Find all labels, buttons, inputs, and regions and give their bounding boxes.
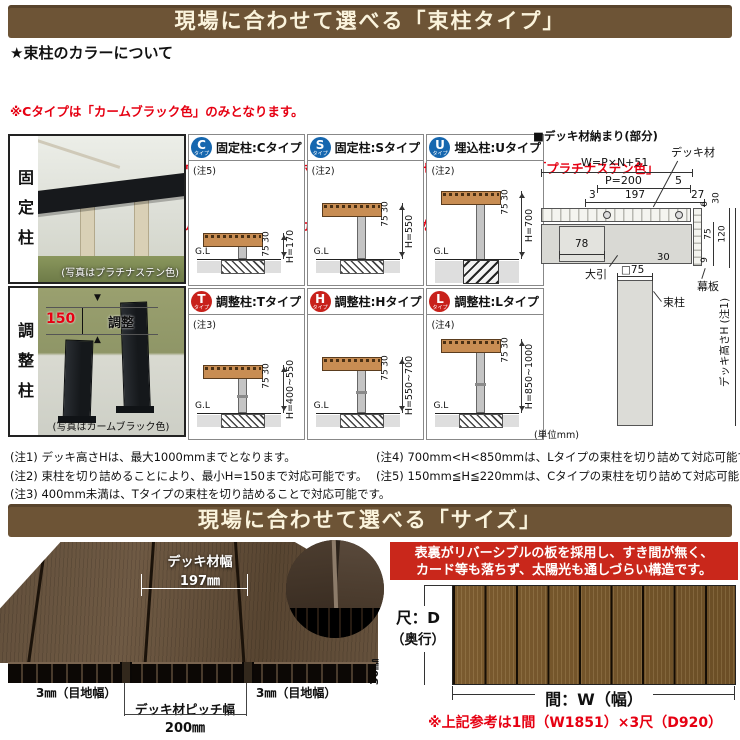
badge-sub: タイプ [194,306,209,311]
footing-hatch [459,414,503,428]
dim-line [559,254,605,255]
type-diagram: (注4) G.L 30 75 H=850~1000 [427,315,543,439]
dim-line [46,334,158,335]
height-dim-line [283,365,284,413]
dim-text: H=550~700 [404,355,415,414]
post-art [63,340,94,423]
type-badge-c: C タイプ [191,137,212,158]
cell-note: (注4) [431,317,454,331]
type-badge-s: S タイプ [310,137,331,158]
dim-text: 30 [262,363,272,374]
note-line: (注2) 束柱を切り詰めることにより、最小H=150まで対応可能です。 [10,467,390,486]
type-diagram: (注2) G.L 30 75 H=550 [308,161,424,285]
dim-text: 75 [262,245,272,256]
dim-text: 30 [500,189,510,200]
post-art [238,246,247,259]
pitch-value: 200㎜ [120,717,250,736]
board-width-dim: 197 [625,189,645,201]
type-cell-header: H タイプ 調整柱:Hタイプ [308,289,424,315]
badge-letter: L [436,293,444,305]
notes-right: (注4) 700mm<H<850mmは、Lタイプの束柱を切り詰めて対応可能です。… [376,448,740,485]
type-badge-u: U タイプ [429,137,450,158]
dim-text: 75 [381,215,391,226]
catalog-page: 現場に合わせて選べる「束柱タイプ」 ★束柱のカラーについて ※Cタイプは「カーム… [0,0,740,740]
feature-line: 表裏がリバーシブルの板を採用し、すき間が無く、 [390,545,738,562]
type-cell-header: L タイプ 調整柱:Lタイプ [427,289,543,315]
height-dim-line [402,203,403,259]
badge-sub: タイプ [194,152,209,157]
dim-text: 120 [718,225,728,242]
height-dim-line [283,233,284,259]
badge-sub: タイプ [313,152,328,157]
pitch-label: デッキ材ピッチ幅 [120,699,250,718]
footing-hatch [340,414,384,428]
dim-line [713,222,714,266]
deck-board-section-art [541,208,691,222]
gap3-dim: 3 [589,189,596,201]
deck-detail-diagram: ■デッキ材納まり(部分) デッキ材 W=P×N+51 P=200 5 3 197… [533,128,738,430]
dim-line [735,208,736,426]
photo-caption: (写真はプラチナステン色) [61,264,179,279]
dim-line [541,172,693,173]
note-line: (注3) 400mm未満は、Tタイプの束柱を切り詰めることで対応可能です。 [10,485,390,504]
width-label-wrap: 間：W（幅） [452,686,736,710]
type-cell-header: U タイプ 埋込柱:Uタイプ [427,135,543,161]
feature-line: カード等も落ちず、太陽光も通しづらい構造です。 [390,562,738,579]
type-cell-l: L タイプ 調整柱:Lタイプ (注4) G.L 30 75 H=850~1000 [426,288,544,440]
banner-post-type: 現場に合わせて選べる「束柱タイプ」 [8,5,732,38]
footing-hatch [221,414,265,428]
joint-connector-art [120,662,132,683]
cross-section-art [286,608,384,638]
dim-text: H=170 [286,229,297,262]
type-cell-c: C タイプ 固定柱:Cタイプ (注5) G.L 30 75 H=170 [188,134,305,286]
deck-art [441,191,501,205]
joint-width-label-right: 3㎜（目地幅） [256,684,336,701]
dim-text: 30 [500,337,510,348]
type-title: 固定柱:Cタイプ [216,139,302,156]
embedded-footing-hatch [463,260,499,284]
detail-title: ■デッキ材納まり(部分) [533,128,658,144]
ground-level-label: G.L [433,401,448,411]
badge-letter: C [197,139,206,151]
arrow-up-icon: ▲ [94,336,101,345]
height-dim-line [521,191,522,259]
width-formula: W=P×N+51 [581,156,648,169]
badge-letter: H [315,293,325,305]
dim-line [142,588,248,589]
adjust-joint-art [237,395,248,398]
dim-tick [141,574,142,596]
dim-text: 30 [712,192,722,203]
footing-hatch [221,260,265,274]
size-reference-note: ※上記参考は1間（W1851）×3尺（D920） [428,712,722,732]
bottom30-dim: 30 [657,252,670,263]
adjustable-post-label: 調整柱 [10,288,38,435]
cell-note: (注5) [193,163,216,177]
adjustable-post-photo-panel: 調整柱 ▼ ▲ 150 調整 (写真はカームブラック色) [8,286,186,437]
note-line: (注5) 150mm≦H≦220mmは、Cタイプの束柱を切り詰めて対応可能です。 [376,467,740,486]
fixed-post-photo: (写真はプラチナステン色) [38,136,184,282]
dim-text: 75 [500,203,510,214]
post-art [357,215,366,259]
dim-text: 6 [700,201,710,207]
post-type-grid: C タイプ 固定柱:Cタイプ (注5) G.L 30 75 H=170 [188,134,529,437]
depth-main: 尺：D [384,606,452,628]
type-title: 調整柱:Lタイプ [454,293,538,310]
adjust-joint-art [475,383,486,386]
type-diagram: (注2) G.L 30 75 H=700 [427,161,543,285]
deck-edge-art [38,172,184,214]
dim-line [46,307,158,308]
adjust-joint-art [356,391,367,394]
color-note-line: ※Cタイプは「カームブラック色」のみとなります。 [10,102,659,121]
type-cell-s: S タイプ 固定柱:Sタイプ (注2) G.L 30 75 H=550 [307,134,425,286]
height-dim-line [521,339,522,413]
feature-box: 表裏がリバーシブルの板を採用し、すき間が無く、 カード等も落ちず、太陽光も通しづ… [390,542,738,580]
deck-cross-section-art [8,662,376,683]
type-title: 埋込柱:Uタイプ [454,139,541,156]
ground-level-label: G.L [195,247,210,257]
dim-text: 75 [381,369,391,380]
joint-connector-art [242,662,254,683]
height-dim-line [402,357,403,413]
screw-icon [675,211,683,219]
deck-art [322,357,382,371]
adjustable-post-photo: ▼ ▲ 150 調整 (写真はカームブラック色) [38,288,184,435]
note-line: (注1) デッキ高さHは、最大1000mmまでとなります。 [10,448,390,467]
cell-note: (注2) [431,163,454,177]
color-section-heading: ★束柱のカラーについて [10,42,173,63]
deck-material-label: デッキ材 [671,144,715,160]
deck-groove-art [27,536,48,662]
width-label: 間：W（幅） [535,686,653,710]
adjust-range-value: 150 [46,311,75,327]
ground-level-label: G.L [195,401,210,411]
dim-text: 75 [500,351,510,362]
adjust-text: 調整 [108,312,134,331]
badge-sub: タイプ [432,152,447,157]
depth-label: 尺：D （奥行） [384,606,452,648]
post-section-art [617,280,653,426]
post-label: 束柱 [663,294,685,310]
note-line: (注4) 700mm<H<850mmは、Lタイプの束柱を切り詰めて対応可能です。 [376,448,740,467]
type-cell-t: T タイプ 調整柱:Tタイプ (注3) G.L 30 75 H=400~550 [188,288,305,440]
unit-label: (単位mm) [534,427,579,441]
type-diagram: (注3) G.L 30 75 H=400~550 [189,315,304,439]
footing-hatch [340,260,384,274]
deck-width-label: デッキ材幅 [145,551,255,570]
type-title: 調整柱:Tタイプ [216,293,301,310]
joist-label: 大引 [585,266,607,282]
ground-level-label: G.L [433,247,448,257]
type-title: 調整柱:Hタイプ [335,293,422,310]
photo-caption: (写真はカームブラック色) [38,418,184,433]
type-badge-h: H タイプ [310,291,331,312]
badge-sub: タイプ [432,306,447,311]
deck-art [441,339,501,353]
dim-line [729,208,730,268]
edge-dim: 27 [691,189,704,201]
badge-letter: S [316,139,325,151]
arrow-down-icon: ▼ [94,294,101,303]
deck-art [203,365,263,379]
dim-text: 30 [381,355,391,366]
badge-letter: T [197,293,205,305]
dim-text: 75 [262,377,272,388]
type-cell-header: C タイプ 固定柱:Cタイプ [189,135,304,161]
gap5-dim: 5 [675,174,682,187]
joint-width-label-left: 3㎜（目地幅） [36,684,116,701]
dim-line [124,714,246,715]
joist-width-dim: 78 [575,238,588,250]
type-cell-header: T タイプ 調整柱:Tタイプ [189,289,304,315]
dim-line [617,276,653,277]
board-art [335,540,384,618]
dim-text: 9 [700,257,710,263]
dim-line [585,202,705,203]
dim-line [424,585,452,586]
dim-text: デッキ高さH (注1) [718,297,733,386]
post-art [476,351,485,413]
deck-plan-view [452,585,736,685]
dim-tick [247,574,248,596]
deck-art [322,203,382,217]
banner-size: 現場に合わせて選べる「サイズ」 [8,504,732,537]
dim-text: H=400~550 [286,359,297,418]
fascia-label: 幕板 [697,278,719,294]
ground-level-label: G.L [314,401,329,411]
cell-note: (注2) [312,163,335,177]
type-badge-l: L タイプ [429,291,450,312]
dim-line [82,308,83,334]
type-diagram: (注5) G.L 30 75 H=170 [189,161,304,285]
type-badge-t: T タイプ [191,291,212,312]
notes-left: (注1) デッキ高さHは、最大1000mmまでとなります。 (注2) 束柱を切り… [10,448,390,504]
screw-icon [603,211,611,219]
dim-text: 30 [381,201,391,212]
dim-text: 30 [262,231,272,242]
cell-note: (注3) [193,317,216,331]
type-cell-header: S タイプ 固定柱:Sタイプ [308,135,424,161]
type-cell-u: U タイプ 埋込柱:Uタイプ (注2) G.L 30 75 H=700 [426,134,544,286]
dim-text: H=550 [404,214,415,247]
leader-line [653,291,662,302]
fixed-post-photo-panel: 固定柱 (写真はプラチナステン色) [8,134,186,284]
deck-art [203,233,263,247]
type-cell-h: H タイプ 調整柱:Hタイプ G.L 30 75 H=550~700 [307,288,425,440]
post-base-art [116,406,154,413]
depth-sub: （奥行） [384,628,452,648]
type-diagram: G.L 30 75 H=550~700 [308,315,424,439]
dim-line [424,586,425,606]
pitch-dim: P=200 [605,174,642,187]
badge-letter: U [435,139,445,151]
joint-closeup-photo [286,540,384,638]
fixed-post-label: 固定柱 [10,136,38,282]
handrail-art [38,138,120,169]
deck-width-value: 197㎜ [145,570,255,589]
dim-line [424,652,425,685]
ground-level-label: G.L [314,247,329,257]
badge-sub: タイプ [313,306,328,311]
post-size-label: □75 [621,264,644,276]
type-title: 固定柱:Sタイプ [335,139,420,156]
